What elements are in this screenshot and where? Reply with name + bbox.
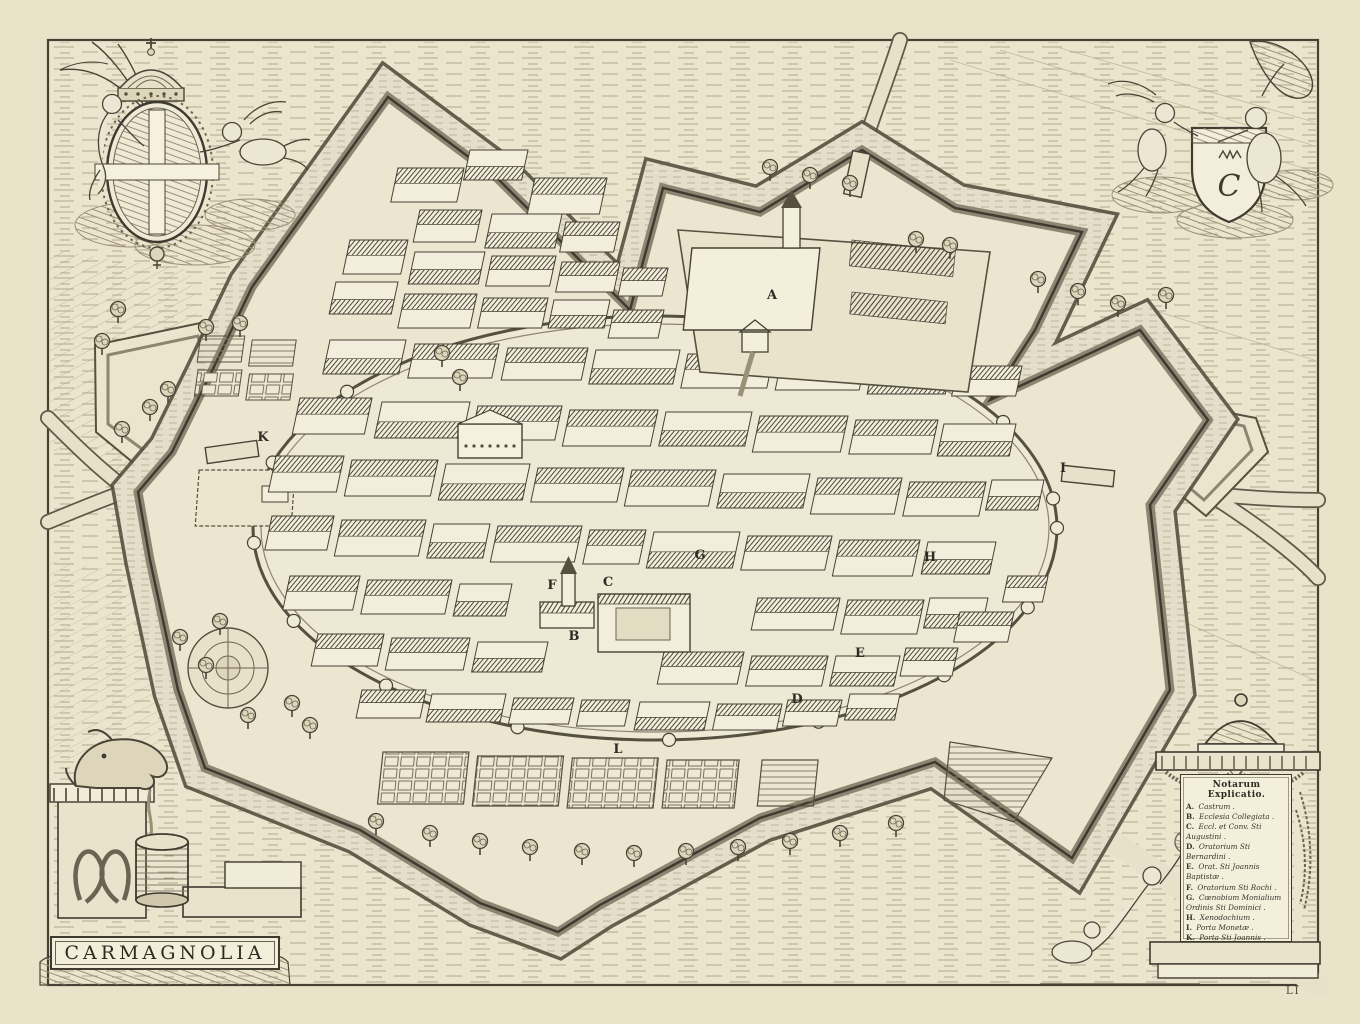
- building-block: [501, 348, 588, 380]
- map-title: CARMAGNOLIA: [65, 942, 266, 964]
- building-block: [329, 282, 398, 314]
- building-block: [408, 252, 485, 284]
- building-block: [1002, 576, 1048, 602]
- building-block: [472, 642, 548, 672]
- building-block: [589, 350, 680, 384]
- building-block: [937, 424, 1016, 456]
- building-block: [391, 168, 464, 202]
- legend-entry: I. Porta Monetæ .: [1186, 923, 1287, 933]
- building-block: [486, 256, 556, 286]
- legend-entry: B. Ecclesia Collegiata .: [1186, 812, 1287, 822]
- wall-tower: [663, 733, 676, 746]
- building-block: [344, 460, 438, 496]
- building-block: [426, 694, 506, 722]
- building-block: [954, 612, 1014, 642]
- legend-list: A. Castrum .B. Ecclesia Collegiata .C. E…: [1186, 802, 1287, 942]
- building-block: [810, 478, 902, 514]
- building-block: [576, 700, 630, 726]
- building-block: [841, 600, 924, 634]
- building-block: [659, 412, 752, 446]
- building-block: [478, 298, 548, 328]
- plate-number: LI: [1286, 986, 1301, 997]
- title-cartouche-plate: CARMAGNOLIA: [50, 936, 280, 970]
- legend-heading: Notarum Explicatio.: [1186, 780, 1287, 800]
- building-block: [560, 222, 620, 252]
- wall-tower: [341, 385, 354, 398]
- building-block: [485, 214, 562, 248]
- map-letter-C: C: [603, 575, 613, 590]
- building-block: [413, 210, 482, 242]
- legend-entry: D. Oratorium Sti Bernardini .: [1186, 842, 1287, 862]
- building-block: [832, 540, 920, 576]
- building-block: [657, 652, 744, 684]
- building-block: [583, 530, 646, 564]
- map-letter-F: F: [547, 578, 557, 593]
- map-letter-D: D: [791, 692, 802, 707]
- building-block: [844, 694, 900, 720]
- map-letter-G: G: [694, 548, 705, 563]
- map-letter-I: I: [1060, 461, 1066, 476]
- map-letter-L: L: [613, 742, 622, 757]
- building-block: [323, 340, 406, 374]
- augustinian-cloister: [598, 594, 690, 652]
- step-wall: [183, 887, 301, 917]
- building-block: [374, 402, 470, 438]
- building-block: [903, 482, 986, 516]
- building-block: [427, 524, 490, 558]
- wall-tower: [247, 536, 260, 549]
- building-block: [900, 648, 958, 676]
- monogram-letter: C: [1218, 169, 1241, 204]
- building-block: [618, 268, 668, 296]
- map-canvas: C: [0, 0, 1360, 1024]
- legend-entry: G. Cœnobium Monialium Ordinis Sti Domini…: [1186, 893, 1287, 913]
- building-block: [292, 398, 372, 434]
- building-block: [752, 416, 848, 452]
- building-block: [562, 410, 658, 446]
- map-letter-H: H: [924, 550, 936, 565]
- building-block: [608, 310, 664, 338]
- building-block: [508, 698, 574, 724]
- wall-tower: [1051, 522, 1064, 535]
- building-block: [527, 178, 607, 214]
- building-block: [334, 520, 426, 556]
- legend-entry: E. Orat. Sti Joannis Baptistæ .: [1186, 862, 1287, 882]
- legend-entry: A. Castrum .: [1186, 802, 1287, 812]
- building-block: [646, 532, 740, 568]
- map-letter-B: B: [569, 629, 580, 644]
- building-block: [343, 240, 408, 274]
- building-block: [438, 464, 530, 500]
- building-block: [453, 584, 512, 616]
- map-letter-A: A: [766, 288, 778, 303]
- building-block: [751, 598, 840, 630]
- wall-tower: [1047, 492, 1060, 505]
- building-block: [361, 580, 452, 614]
- legend-entry: K. Porta Sti Joannis .: [1186, 933, 1287, 942]
- legend-entry: F. Oratorium Sti Rochi .: [1186, 883, 1287, 893]
- building-block: [398, 294, 477, 328]
- map-letter-K: K: [257, 430, 269, 445]
- wall-tower: [287, 614, 300, 627]
- pedestal: [58, 800, 146, 918]
- basin-tub: [136, 834, 188, 907]
- building-block: [283, 576, 360, 610]
- map-letter-E: E: [855, 646, 865, 661]
- legend-panel: Notarum Explicatio. A. Castrum .B. Eccle…: [1180, 774, 1292, 942]
- building-block: [746, 656, 828, 686]
- building-block: [624, 470, 716, 506]
- building-block: [311, 634, 384, 666]
- building-block: [531, 468, 624, 502]
- building-block: [741, 536, 832, 570]
- base-plinth: [1150, 942, 1320, 964]
- cornice: [1156, 752, 1320, 770]
- wall-tower: [1021, 601, 1034, 614]
- legend-entry: H. Xenodochium .: [1186, 913, 1287, 923]
- building-block: [986, 480, 1044, 510]
- engraved-map-carmagnolia: C: [0, 0, 1360, 1024]
- building-block: [265, 516, 334, 550]
- building-block: [712, 704, 782, 730]
- building-block: [464, 150, 528, 180]
- building-block: [634, 702, 710, 730]
- legend-entry: C. Eccl. et Conv. Sti Augustini .: [1186, 822, 1287, 842]
- building-block: [268, 456, 344, 492]
- building-block: [385, 638, 470, 670]
- building-block: [849, 420, 938, 454]
- building-block: [556, 262, 620, 292]
- building-block: [717, 474, 810, 508]
- building-block: [356, 690, 426, 718]
- building-block: [548, 300, 610, 328]
